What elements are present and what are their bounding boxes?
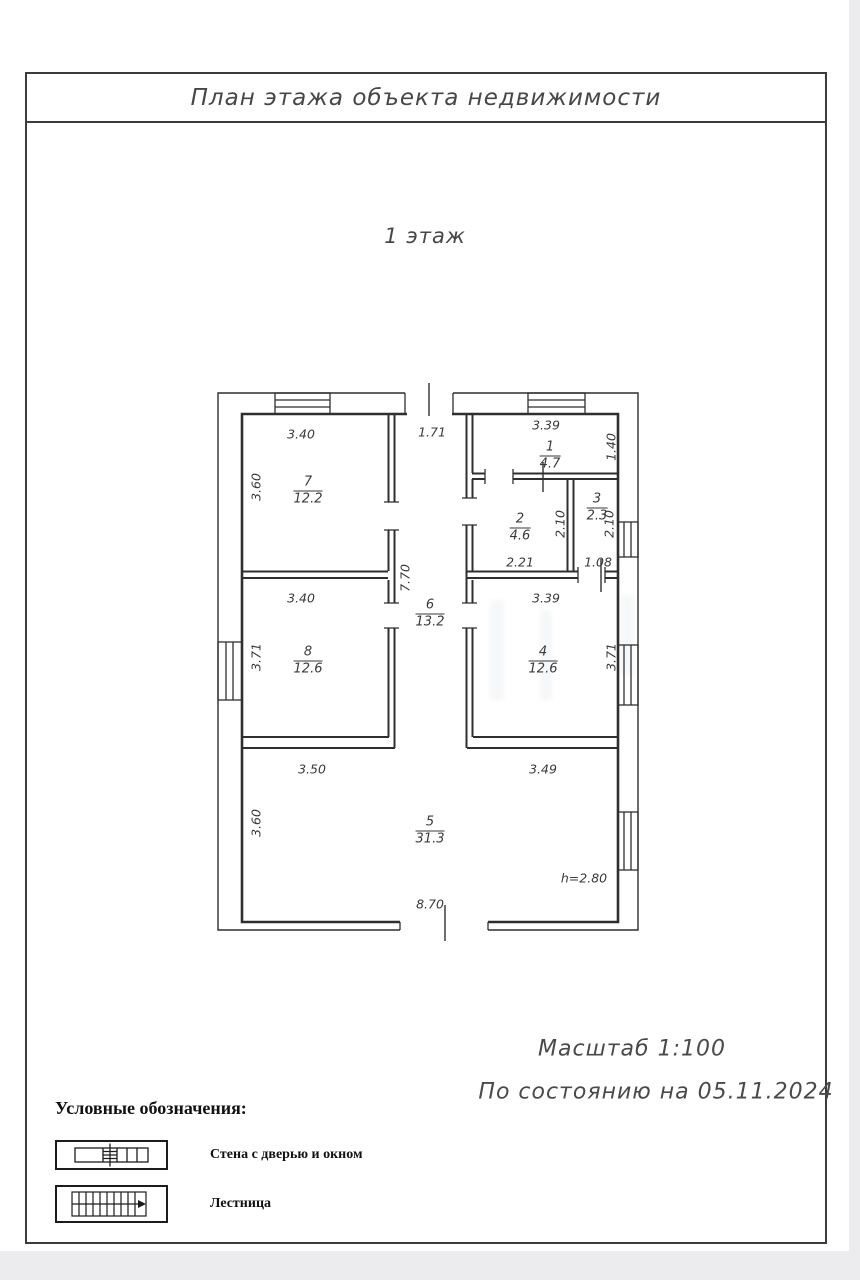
room-number: 1	[540, 441, 561, 457]
legend-header: Условные обозначения:	[55, 1098, 247, 1119]
dimension-label: 3.71	[604, 643, 619, 671]
legend-item-stairs: Лестница	[55, 1185, 271, 1223]
room-label: 412.6	[529, 646, 558, 677]
dimension-label: 1.08	[584, 555, 612, 570]
room-number: 8	[294, 646, 323, 662]
room-area: 4.7	[540, 457, 561, 472]
room-label: 712.2	[294, 476, 323, 507]
dimension-label: 3.71	[249, 643, 264, 671]
room-label: 531.3	[416, 816, 445, 847]
room-label: 32.3	[587, 493, 608, 524]
room-area: 4.6	[510, 529, 531, 544]
room-area: 31.3	[416, 832, 445, 847]
room-number: 5	[416, 816, 445, 832]
room-area: 13.2	[416, 615, 445, 630]
dimension-label: h=2.80	[561, 871, 607, 886]
dimension-label: 7.70	[398, 564, 413, 592]
dimension-label: 3.39	[532, 591, 560, 606]
room-number: 7	[294, 476, 323, 492]
stairs-symbol	[55, 1185, 168, 1223]
dimension-label: 3.60	[249, 809, 264, 837]
dimension-label: 3.40	[287, 591, 315, 606]
room-label: 24.6	[510, 513, 531, 544]
legend-item-label: Лестница	[210, 1196, 271, 1212]
room-area: 2.3	[587, 509, 608, 524]
dimension-label: 3.50	[298, 762, 326, 777]
dimension-label: 3.49	[529, 762, 557, 777]
legend-item-wall-door-window: Стена с дверью и окном	[55, 1140, 363, 1170]
wall-door-window-symbol	[55, 1140, 168, 1170]
legend-item-label: Стена с дверью и окном	[210, 1147, 363, 1163]
interior-walls	[242, 415, 618, 748]
document-page: План этажа объекта недвижимости 1 этаж	[0, 0, 860, 1280]
dimension-label: 3.40	[287, 427, 315, 442]
room-label: 812.6	[294, 646, 323, 677]
room-number: 6	[416, 599, 445, 615]
room-number: 3	[587, 493, 608, 509]
room-number: 4	[529, 646, 558, 662]
window-symbols	[218, 393, 638, 870]
dimension-label: 2.10	[553, 510, 568, 538]
room-label: 14.7	[540, 441, 561, 472]
room-area: 12.6	[529, 662, 558, 677]
room-area: 12.6	[294, 662, 323, 677]
date-label: По состоянию на 05.11.2024	[478, 1080, 833, 1105]
dimension-label: 1.40	[604, 433, 619, 461]
dimension-label: 1.71	[418, 425, 446, 440]
dimension-label: 3.39	[532, 418, 560, 433]
dimension-label: 8.70	[416, 897, 444, 912]
legend: Условные обозначения: Стена с дверью и о…	[55, 1098, 247, 1119]
room-number: 2	[510, 513, 531, 529]
dimension-label: 3.60	[249, 473, 264, 501]
room-area: 12.2	[294, 492, 323, 507]
scale-label: Масштаб 1:100	[538, 1037, 726, 1062]
room-label: 613.2	[416, 599, 445, 630]
dimension-label: 2.21	[506, 555, 534, 570]
dimension-ticks	[429, 383, 601, 941]
